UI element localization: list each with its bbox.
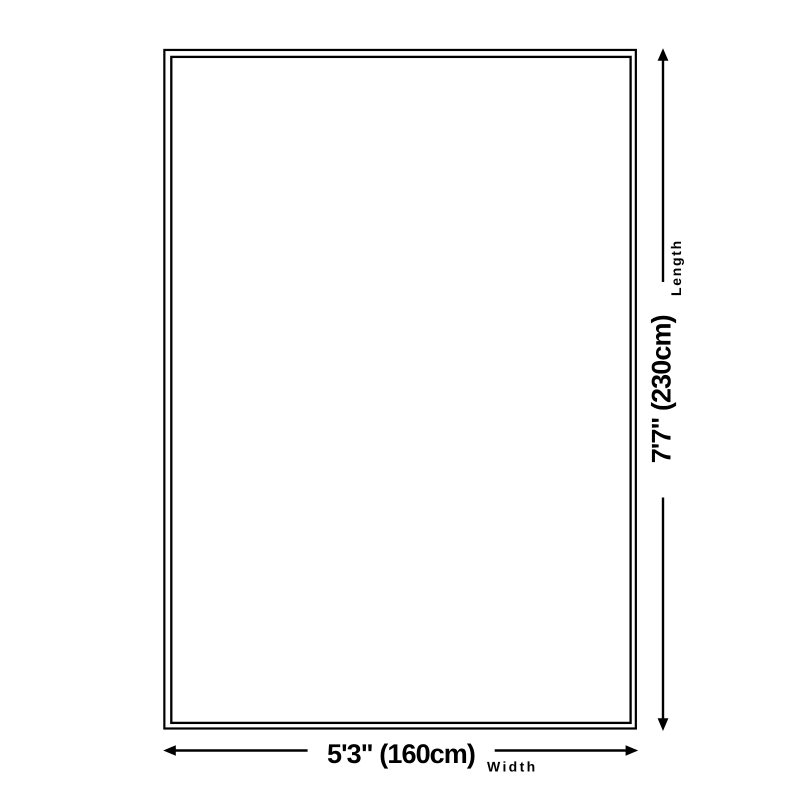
svg-text:7'7" (230cm): 7'7" (230cm): [646, 315, 676, 463]
svg-text:Width: Width: [487, 759, 538, 775]
svg-text:5'3" (160cm): 5'3" (160cm): [327, 739, 475, 769]
svg-text:Length: Length: [668, 239, 684, 296]
